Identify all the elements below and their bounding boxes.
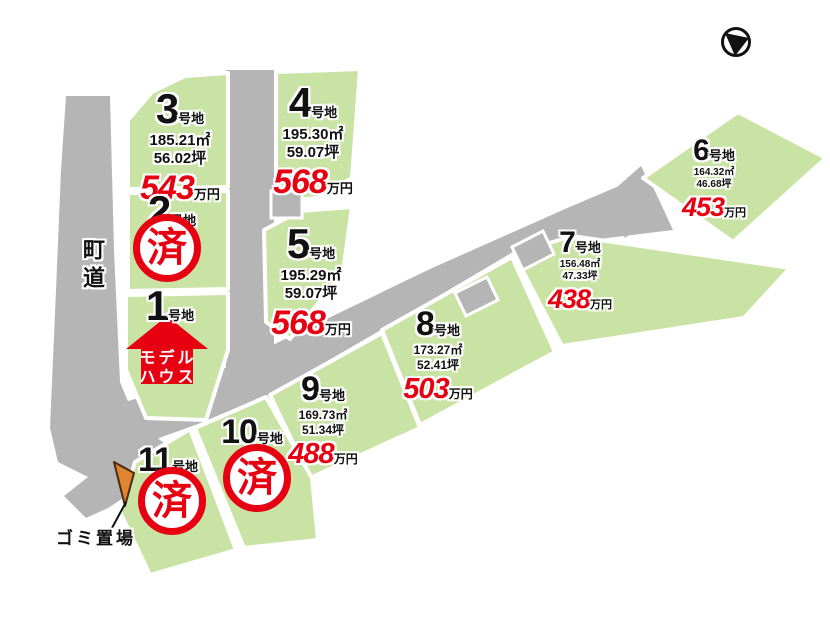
lot-4-price: 568万円 [273,164,353,201]
sold-text: 済 [147,228,187,268]
lot-6-area-tsubo: 46.68坪 [682,179,746,191]
lot-5-area-tsubo: 59.07坪 [271,285,351,303]
lot-5-number: 5号地 [271,221,351,267]
lot-4-area-m2: 195.30㎡ [273,126,353,144]
lot-6-number: 6号地 [682,134,746,167]
lot-7-area-m2: 156.48㎡ [548,259,612,271]
lot-7-area-tsubo: 47.33坪 [548,271,612,283]
town-road-label: 町道 [76,238,108,294]
lot-8-area-tsubo: 52.41坪 [403,358,472,372]
lot-7-number: 7号地 [548,226,612,259]
lot-6-price: 453万円 [682,193,746,223]
lot-4-label: 4号地 195.30㎡ 59.07坪 568万円 [273,80,353,202]
lot-8-label: 8号地 173.27㎡ 52.41坪 503万円 [403,306,472,406]
north-arrow-icon [723,29,750,57]
sold-text: 済 [237,458,277,498]
lot-9-number: 9号地 [288,371,357,408]
lot-5-area-m2: 195.29㎡ [271,267,351,285]
lot-9-price: 488万円 [288,439,357,471]
lot-9-area-m2: 169.73㎡ [288,408,357,422]
lot-map-canvas: 3号地 185.21㎡ 56.02坪 543万円 4号地 195.30㎡ 59.… [0,0,830,617]
lot-7-price: 438万円 [548,285,612,315]
lot-5-label: 5号地 195.29㎡ 59.07坪 568万円 [271,221,351,343]
lot-3-area-m2: 185.21㎡ [140,132,220,150]
lot-1-number: 1号地 [146,283,194,329]
lot-1-label: 1号地 [146,283,194,329]
lot-8-area-m2: 173.27㎡ [403,343,472,357]
sold-badge-lot-10: 済 [223,444,291,512]
sold-text: 済 [152,481,192,521]
lot-4-area-tsubo: 59.07坪 [273,144,353,162]
lot-3-number: 3号地 [140,86,220,132]
lot-3-area-tsubo: 56.02坪 [140,150,220,168]
lot-6-label: 6号地 164.32㎡ 46.68坪 453万円 [682,134,746,223]
lot-9-area-tsubo: 51.34坪 [288,423,357,437]
lot-9-label: 9号地 169.73㎡ 51.34坪 488万円 [288,371,357,471]
sold-badge-lot-11: 済 [138,467,206,535]
sold-badge-lot-2: 済 [133,214,201,282]
trash-site-label: ゴミ置場 [56,524,136,549]
model-house-text-line2: ハウス [139,363,196,387]
lot-5-price: 568万円 [271,305,351,342]
lot-6-area-m2: 164.32㎡ [682,167,746,179]
lot-8-price: 503万円 [403,374,472,406]
lot-7-label: 7号地 156.48㎡ 47.33坪 438万円 [548,226,612,315]
lot-8-number: 8号地 [403,306,472,343]
lot-4-number: 4号地 [273,80,353,126]
